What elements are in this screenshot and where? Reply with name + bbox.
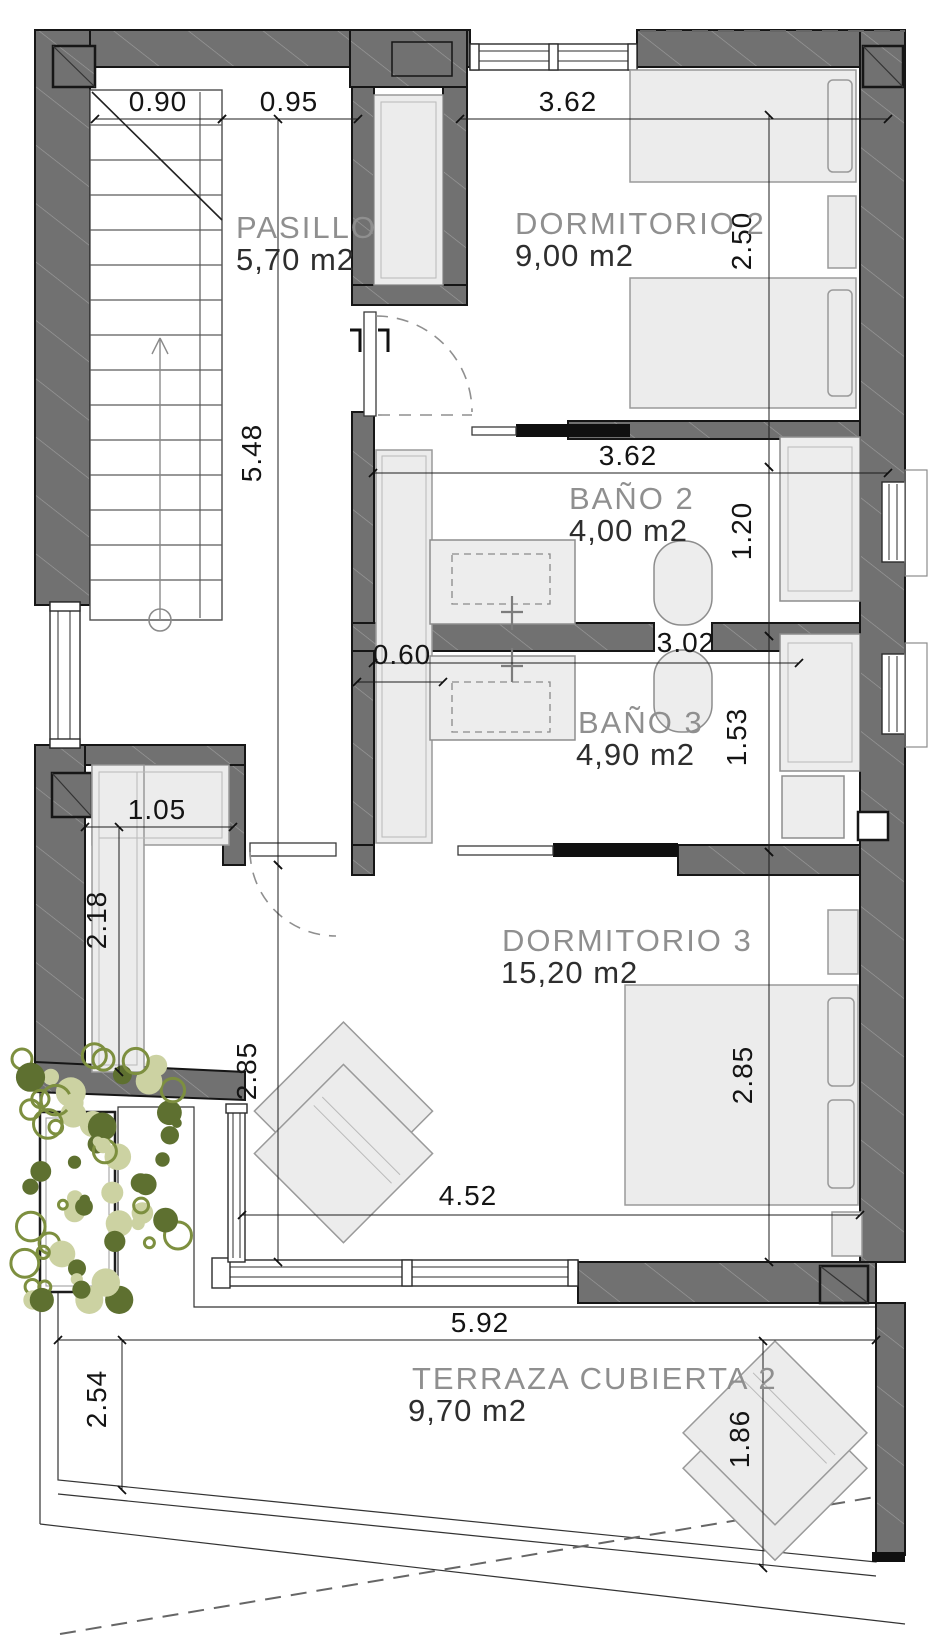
- window-left-icon: [50, 602, 80, 748]
- nightstand-dorm3-top-icon: [828, 910, 858, 974]
- dim-0-60: 0.60: [373, 639, 432, 670]
- window-dorm3-side-icon: [226, 1104, 247, 1262]
- toilet-bano2-icon: [654, 541, 712, 625]
- dim-1-53: 1.53: [721, 708, 752, 767]
- shower-bano3-icon: [780, 634, 860, 771]
- room-bano2-name: BAÑO 2: [569, 481, 695, 516]
- dim-3-62-bano2: 3.62: [599, 440, 658, 471]
- armchair-icon: [233, 1022, 454, 1243]
- room-bano2-area: 4,00 m2: [569, 513, 688, 548]
- sliding-door-dorm2-icon: [472, 424, 630, 437]
- sink-bano2-icon: [430, 540, 575, 630]
- door-closet-icon: [250, 843, 336, 936]
- sliding-door-dorm3-icon: [458, 843, 678, 857]
- floor-plan-page: 0.90 0.95 3.62 2.50 5.48 3.62 1.20 0.60 …: [0, 0, 942, 1647]
- room-dormitorio2-area: 9,00 m2: [515, 238, 634, 273]
- room-dormitorio2-name: DORMITORIO 2: [515, 206, 766, 241]
- dim-2-85-left: 2.85: [231, 1042, 262, 1101]
- single-bed-1-icon: [630, 70, 856, 182]
- nightstand-dorm2-icon: [828, 196, 856, 268]
- dim-5-48: 5.48: [236, 424, 267, 483]
- dim-1-20: 1.20: [726, 502, 757, 561]
- window-dorm3-slider-icon: [212, 1258, 578, 1288]
- sink-bano3-icon: [430, 648, 575, 740]
- shower-bano2-icon: [780, 437, 860, 601]
- dim-3-62-top: 3.62: [539, 86, 598, 117]
- room-bano3-name: BAÑO 3: [578, 705, 704, 740]
- room-terraza-area: 9,70 m2: [408, 1393, 527, 1428]
- dim-1-86: 1.86: [724, 1410, 755, 1469]
- dim-2-54: 2.54: [81, 1370, 112, 1429]
- window-bano3-icon: [882, 643, 927, 747]
- window-top-icon: [470, 44, 637, 70]
- stairs: [90, 90, 222, 631]
- single-bed-2-icon: [630, 278, 856, 408]
- dim-1-05: 1.05: [128, 794, 187, 825]
- room-dormitorio3-name: DORMITORIO 3: [502, 923, 753, 958]
- bath-bench-icon: [782, 776, 844, 838]
- dim-4-52: 4.52: [439, 1180, 498, 1211]
- door-pasillo-icon: [350, 312, 472, 416]
- floor-plan-svg: 0.90 0.95 3.62 2.50 5.48 3.62 1.20 0.60 …: [0, 0, 942, 1647]
- dim-2-18: 2.18: [81, 891, 112, 950]
- dim-0-95: 0.95: [260, 86, 319, 117]
- window-bano2-icon: [882, 470, 927, 576]
- wardrobe-pasillo-icon: [374, 95, 443, 285]
- room-pasillo-area: 5,70 m2: [236, 242, 355, 277]
- room-dormitorio3-area: 15,20 m2: [501, 955, 638, 990]
- dim-2-85-right: 2.85: [727, 1046, 758, 1105]
- nightstand-dorm3-bottom-icon: [832, 1212, 862, 1256]
- dim-0-90: 0.90: [129, 86, 188, 117]
- room-pasillo-name: PASILLO: [236, 210, 377, 245]
- room-bano3-area: 4,90 m2: [576, 737, 695, 772]
- dim-3-02: 3.02: [657, 627, 716, 658]
- dim-5-92: 5.92: [451, 1307, 510, 1338]
- room-terraza-name: TERRAZA CUBIERTA 2: [412, 1361, 778, 1396]
